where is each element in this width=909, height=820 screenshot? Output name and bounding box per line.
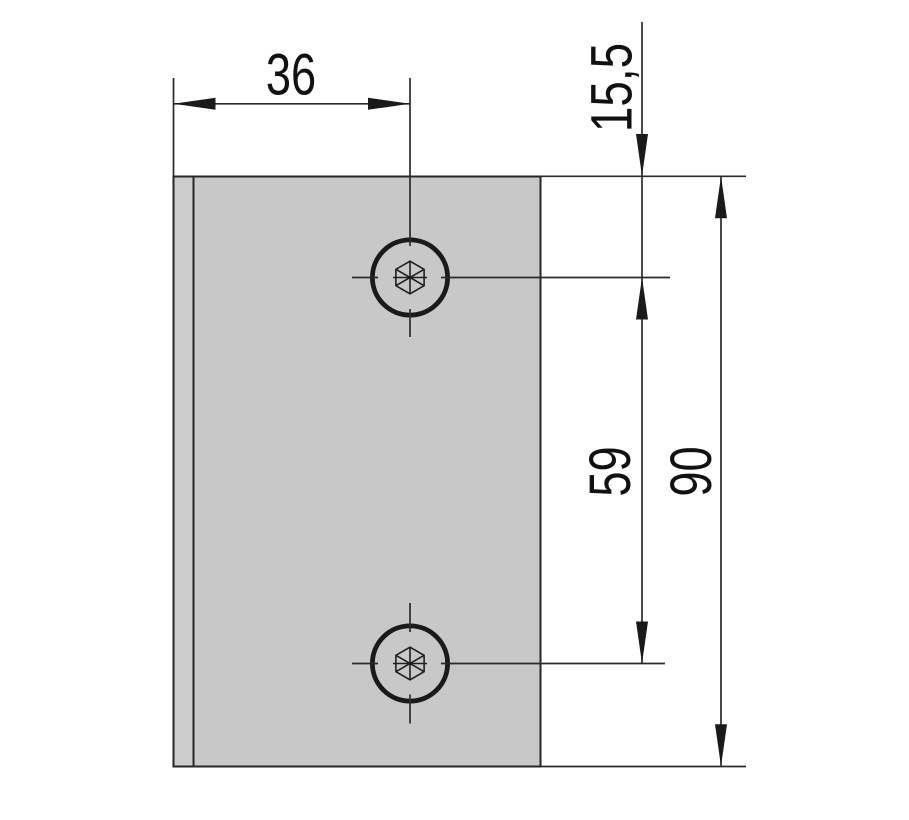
svg-text:36: 36	[266, 43, 316, 108]
svg-text:59: 59	[579, 446, 644, 496]
svg-text:90: 90	[660, 446, 725, 496]
svg-text:15,5: 15,5	[580, 43, 644, 132]
